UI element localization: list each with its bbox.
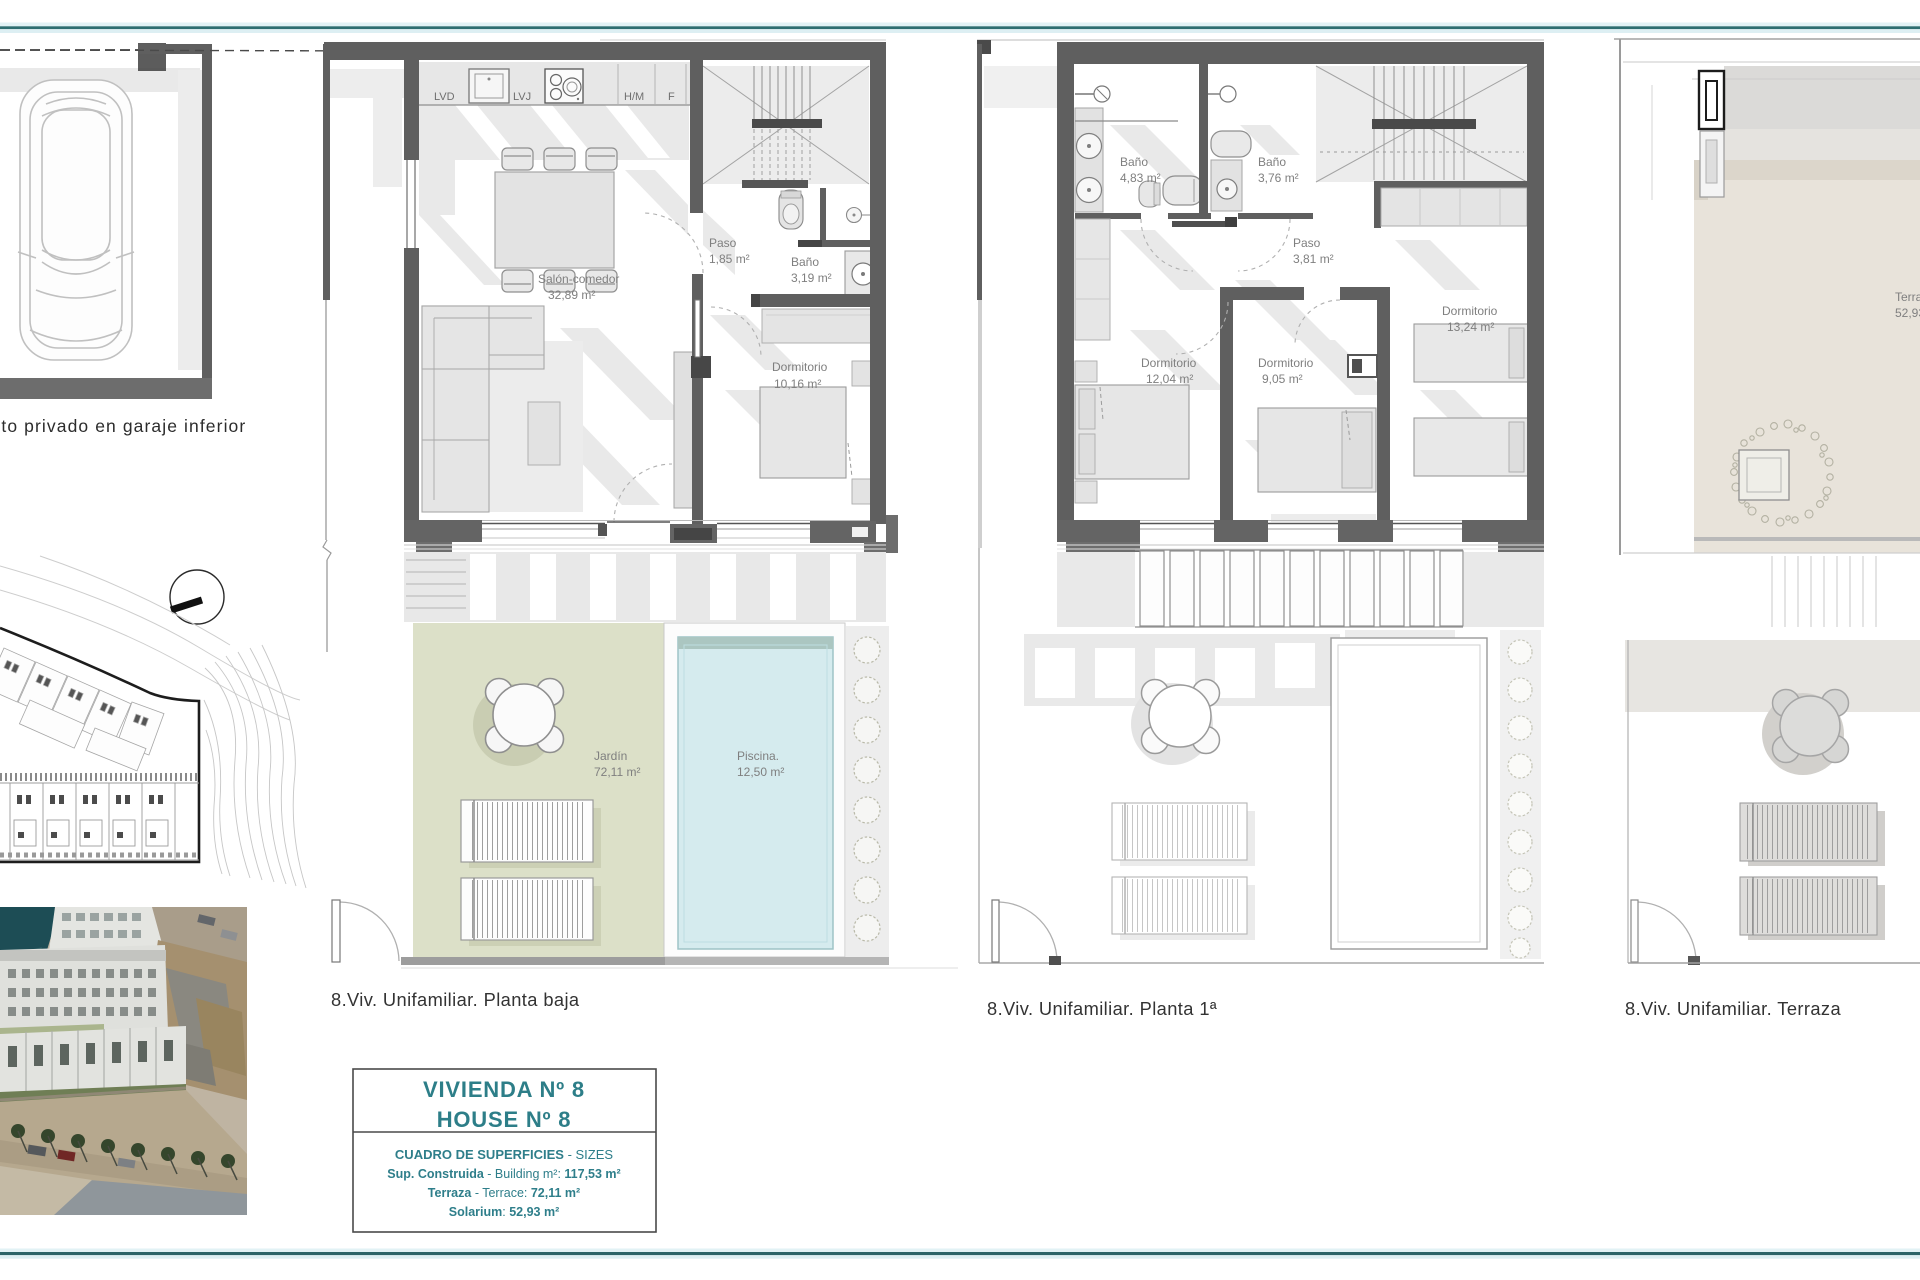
svg-text:12,50 m²: 12,50 m²	[737, 765, 784, 779]
svg-text:H/M: H/M	[624, 91, 644, 103]
svg-text:8.Viv. Unifamiliar. Planta baj: 8.Viv. Unifamiliar. Planta baja	[331, 989, 580, 1010]
svg-text:Paso: Paso	[709, 236, 737, 250]
svg-text:52,93 m²: 52,93 m²	[1895, 306, 1920, 320]
svg-text:CUADRO DE SUPERFICIES - SIZES: CUADRO DE SUPERFICIES - SIZES	[395, 1147, 613, 1162]
svg-text:4,83 m²: 4,83 m²	[1120, 171, 1161, 185]
svg-text:Jardín: Jardín	[594, 749, 627, 763]
svg-text:Aparcamiento privado en garaje: Aparcamiento privado en garaje inferior	[0, 416, 246, 436]
svg-text:Piscina.: Piscina.	[737, 749, 779, 763]
svg-text:12,04 m²: 12,04 m²	[1146, 372, 1193, 386]
svg-text:Solarium: 52,93 m²: Solarium: 52,93 m²	[449, 1205, 559, 1219]
svg-text:Terraza: Terraza	[1895, 290, 1920, 304]
svg-text:3,76 m²: 3,76 m²	[1258, 171, 1299, 185]
svg-text:Baño: Baño	[791, 255, 819, 269]
svg-text:Baño: Baño	[1120, 155, 1148, 169]
svg-text:Baño: Baño	[1258, 155, 1286, 169]
svg-text:3,81 m²: 3,81 m²	[1293, 252, 1334, 266]
svg-text:3,19 m²: 3,19 m²	[791, 271, 832, 285]
svg-text:Dormitorio: Dormitorio	[1141, 356, 1197, 370]
svg-text:Paso: Paso	[1293, 236, 1321, 250]
svg-text:10,16 m²: 10,16 m²	[774, 377, 821, 391]
svg-text:Salón-comedor: Salón-comedor	[538, 272, 619, 286]
svg-text:9,05 m²: 9,05 m²	[1262, 372, 1303, 386]
svg-text:LVD: LVD	[434, 91, 455, 103]
svg-text:LVJ: LVJ	[513, 91, 531, 103]
svg-text:Dormitorio: Dormitorio	[1258, 356, 1314, 370]
svg-text:32,89 m²: 32,89 m²	[548, 288, 595, 302]
svg-text:72,11 m²: 72,11 m²	[594, 765, 640, 779]
svg-text:Sup. Construida - Building m²:: Sup. Construida - Building m²: 117,53 m²	[387, 1167, 620, 1181]
svg-text:HOUSE Nº 8: HOUSE Nº 8	[437, 1107, 572, 1132]
svg-text:13,24 m²: 13,24 m²	[1447, 320, 1494, 334]
svg-text:VIVIENDA Nº 8: VIVIENDA Nº 8	[423, 1077, 585, 1102]
svg-text:8.Viv. Unifamiliar. Planta 1ª: 8.Viv. Unifamiliar. Planta 1ª	[987, 998, 1217, 1019]
svg-text:Terraza - Terrace: 72,11 m²: Terraza - Terrace: 72,11 m²	[428, 1186, 580, 1200]
svg-text:8.Viv. Unifamiliar. Terraza: 8.Viv. Unifamiliar. Terraza	[1625, 998, 1841, 1019]
svg-text:Dormitorio: Dormitorio	[1442, 304, 1498, 318]
svg-text:F: F	[668, 91, 675, 103]
svg-text:Dormitorio: Dormitorio	[772, 360, 828, 374]
svg-text:1,85 m²: 1,85 m²	[709, 252, 750, 266]
